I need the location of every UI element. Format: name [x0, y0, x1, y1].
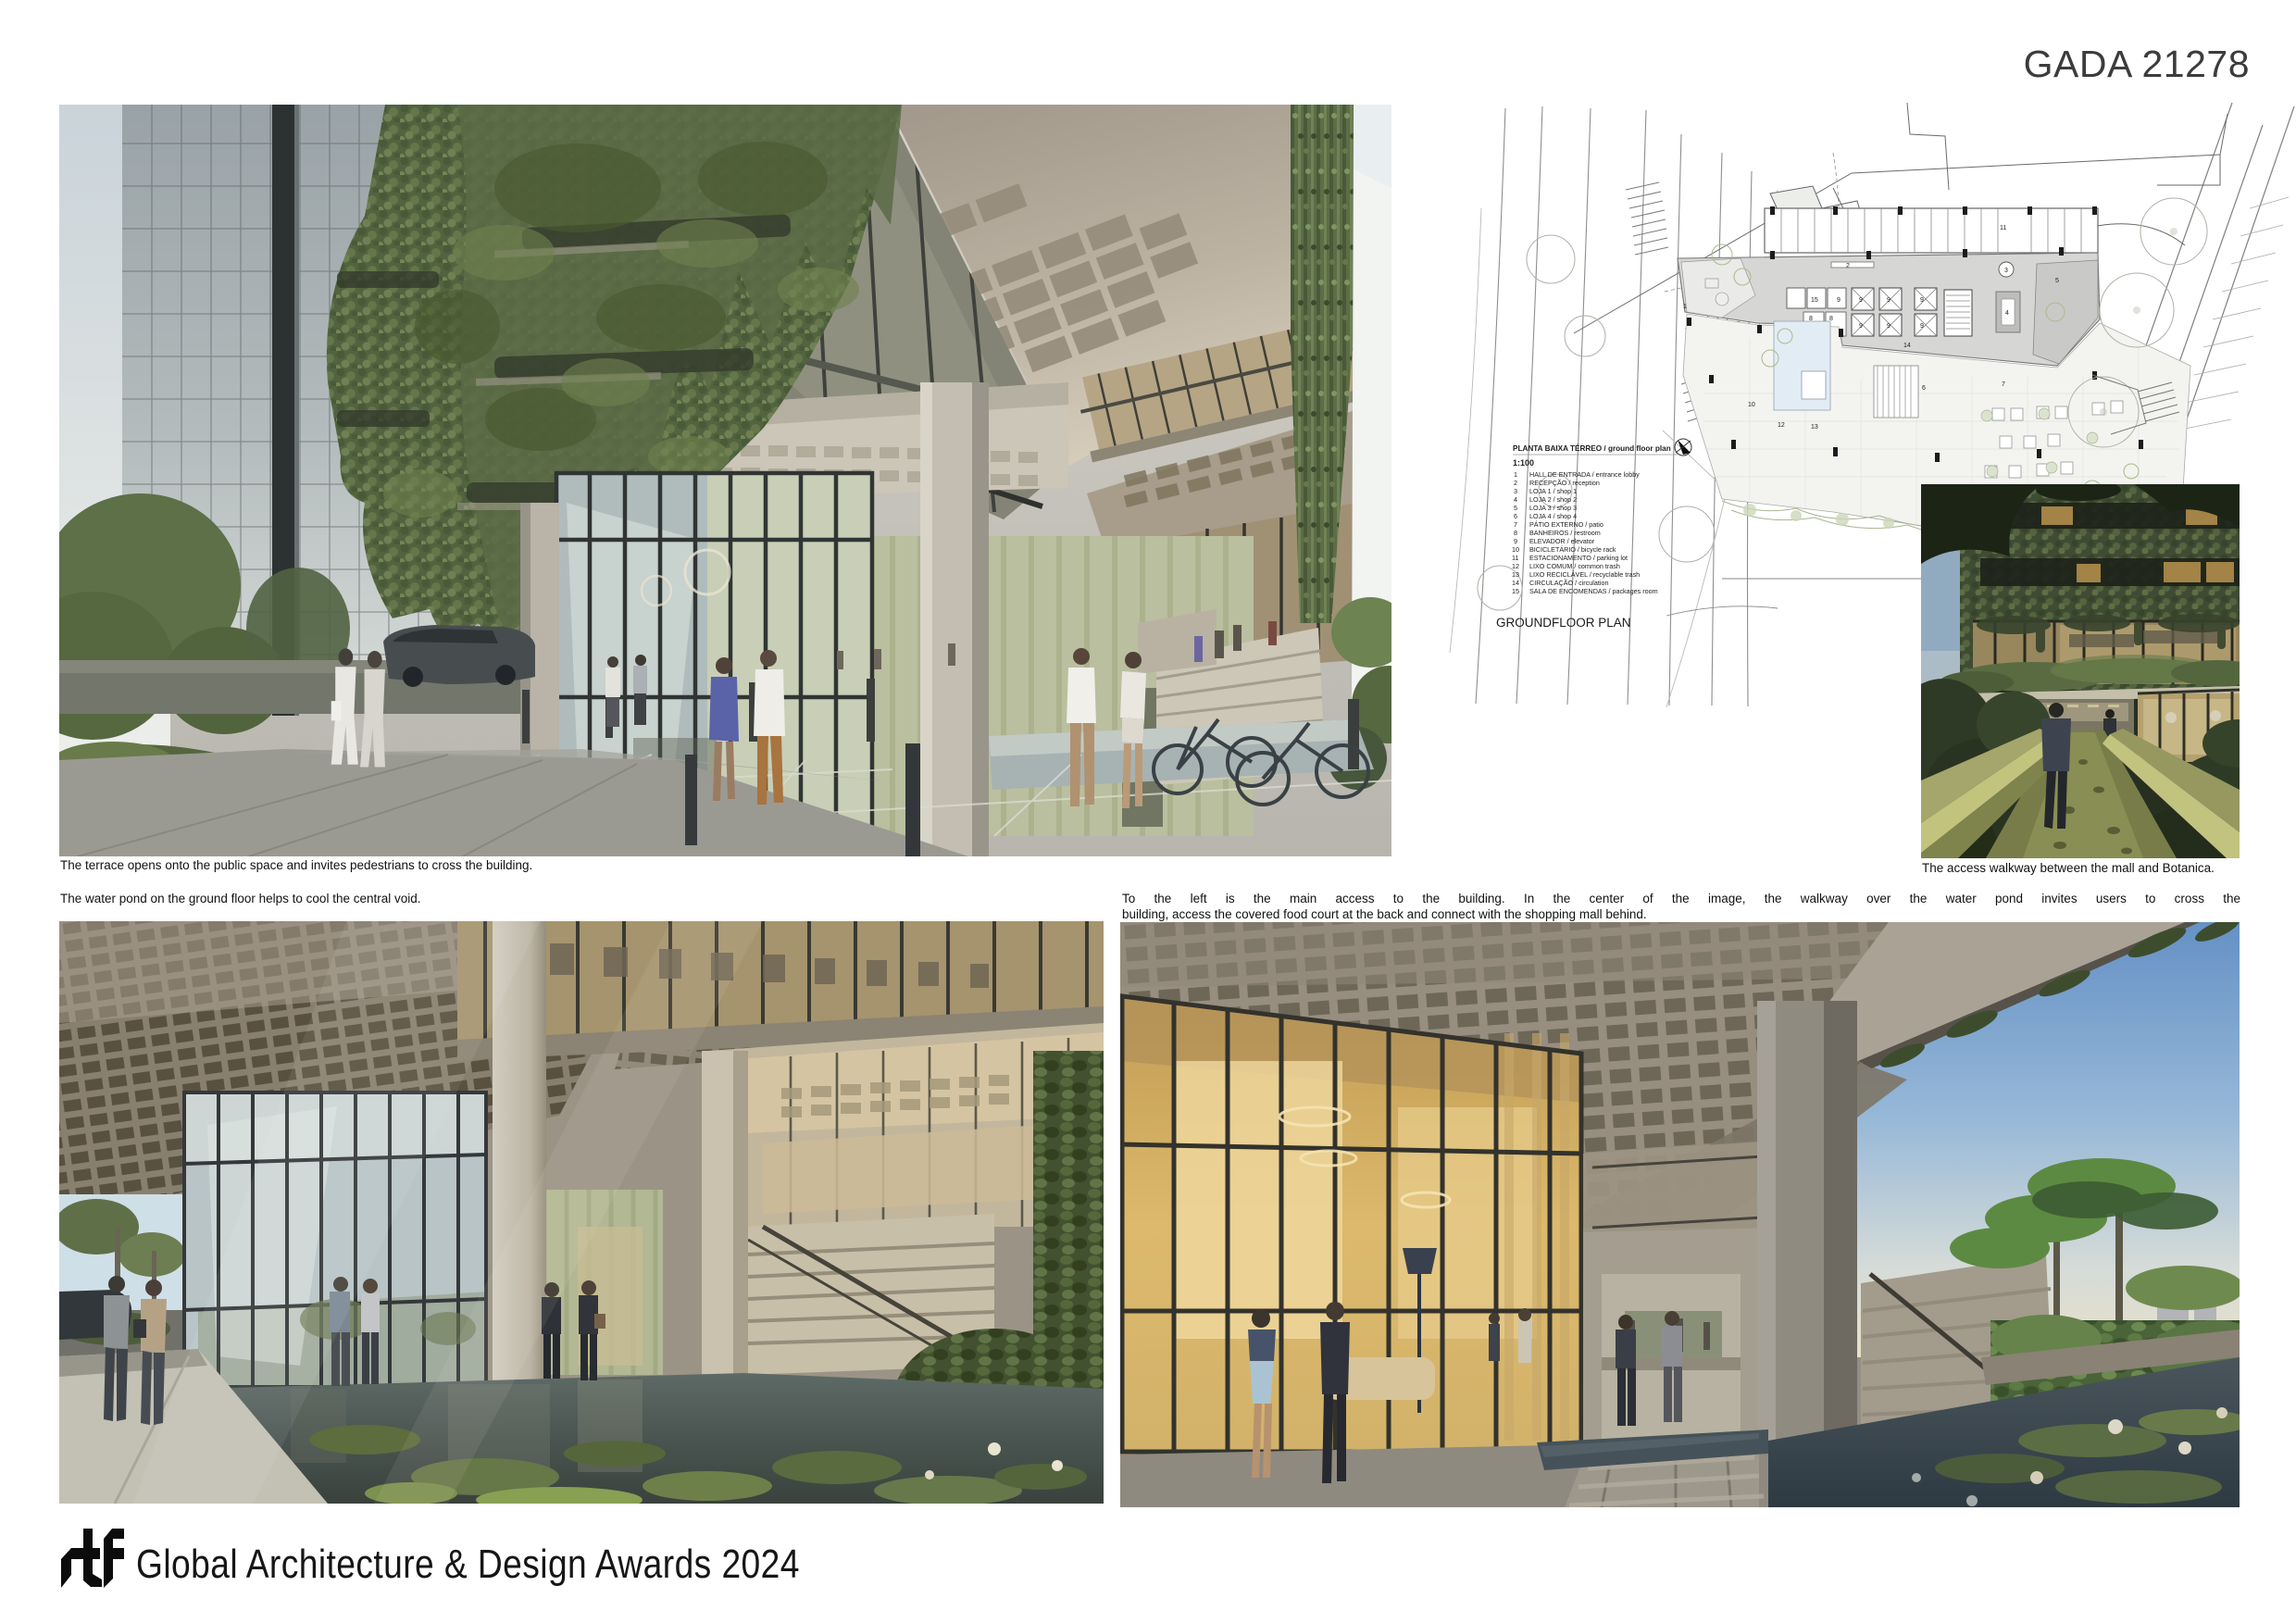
svg-text:11: 11	[1512, 554, 1518, 562]
svg-text:LOJA 2 / shop 2: LOJA 2 / shop 2	[1529, 495, 1577, 504]
svg-text:2: 2	[1846, 263, 1850, 269]
svg-text:13: 13	[1811, 424, 1818, 431]
svg-text:14: 14	[1903, 343, 1911, 349]
svg-text:CIRCULAÇÃO / circulation: CIRCULAÇÃO / circulation	[1529, 579, 1608, 587]
svg-text:LOJA 3 / shop 3: LOJA 3 / shop 3	[1529, 504, 1577, 512]
svg-text:4: 4	[2005, 310, 2009, 317]
svg-text:9: 9	[1920, 323, 1924, 330]
svg-text:8: 8	[1829, 316, 1833, 322]
svg-text:9: 9	[1887, 297, 1890, 304]
svg-text:9: 9	[1920, 297, 1924, 304]
svg-text:LOJA 1 / shop 1: LOJA 1 / shop 1	[1529, 487, 1577, 495]
svg-text:7: 7	[1514, 520, 1517, 529]
svg-text:1: 1	[1514, 470, 1517, 479]
svg-text:SALA DE ENCOMENDAS / packages: SALA DE ENCOMENDAS / packages room	[1529, 587, 1658, 595]
svg-text:8: 8	[1809, 316, 1813, 322]
svg-text:HALL DE ENTRADA / entrance lob: HALL DE ENTRADA / entrance lobby	[1529, 470, 1640, 479]
svg-text:6: 6	[1514, 512, 1517, 520]
svg-text:11: 11	[2000, 225, 2006, 231]
svg-text:LOJA 4 / shop 4: LOJA 4 / shop 4	[1529, 512, 1577, 520]
svg-text:3: 3	[2004, 268, 2008, 274]
svg-text:9: 9	[1837, 297, 1841, 304]
svg-text:9: 9	[1859, 323, 1863, 330]
svg-text:12: 12	[1778, 422, 1785, 429]
svg-text:PÁTIO EXTERNO / patio: PÁTIO EXTERNO / patio	[1529, 520, 1603, 529]
svg-text:ESTACIONAMENTO / parking lot: ESTACIONAMENTO / parking lot	[1529, 554, 1628, 562]
svg-text:LIXO RECICLÁVEL / recyclable t: LIXO RECICLÁVEL / recyclable trash	[1529, 570, 1640, 579]
svg-text:LIXO COMUM / common trash: LIXO COMUM / common trash	[1529, 562, 1620, 570]
svg-text:13: 13	[1512, 570, 1519, 579]
svg-text:7: 7	[2002, 381, 2005, 388]
svg-text:6: 6	[1922, 385, 1926, 392]
svg-text:PLANTA BAIXA TÉRREO / ground f: PLANTA BAIXA TÉRREO / ground floor plan	[1513, 443, 1671, 453]
svg-text:BICICLETÁRIO / bicycle rack: BICICLETÁRIO / bicycle rack	[1529, 545, 1616, 554]
svg-text:BANHEIROS / restroom: BANHEIROS / restroom	[1529, 529, 1601, 537]
svg-text:9: 9	[1887, 323, 1890, 330]
svg-text:10: 10	[1748, 402, 1755, 408]
svg-text:3: 3	[1514, 487, 1517, 495]
svg-text:10: 10	[1512, 545, 1519, 554]
svg-text:5: 5	[1514, 504, 1517, 512]
svg-text:ELEVADOR / elevator: ELEVADOR / elevator	[1529, 537, 1595, 545]
svg-text:15: 15	[1811, 297, 1818, 304]
svg-text:1:100: 1:100	[1513, 458, 1534, 468]
svg-text:9: 9	[1859, 297, 1863, 304]
svg-text:9: 9	[1514, 537, 1517, 545]
svg-text:8: 8	[1514, 529, 1517, 537]
svg-text:1: 1	[1683, 304, 1687, 310]
svg-text:2: 2	[1514, 479, 1517, 487]
svg-text:14: 14	[1512, 579, 1519, 587]
svg-text:4: 4	[1514, 495, 1517, 504]
svg-text:RECEPÇÃO / reception: RECEPÇÃO / reception	[1529, 479, 1600, 487]
svg-text:12: 12	[1512, 562, 1519, 570]
svg-text:15: 15	[1512, 587, 1519, 595]
svg-text:5: 5	[2055, 278, 2059, 284]
